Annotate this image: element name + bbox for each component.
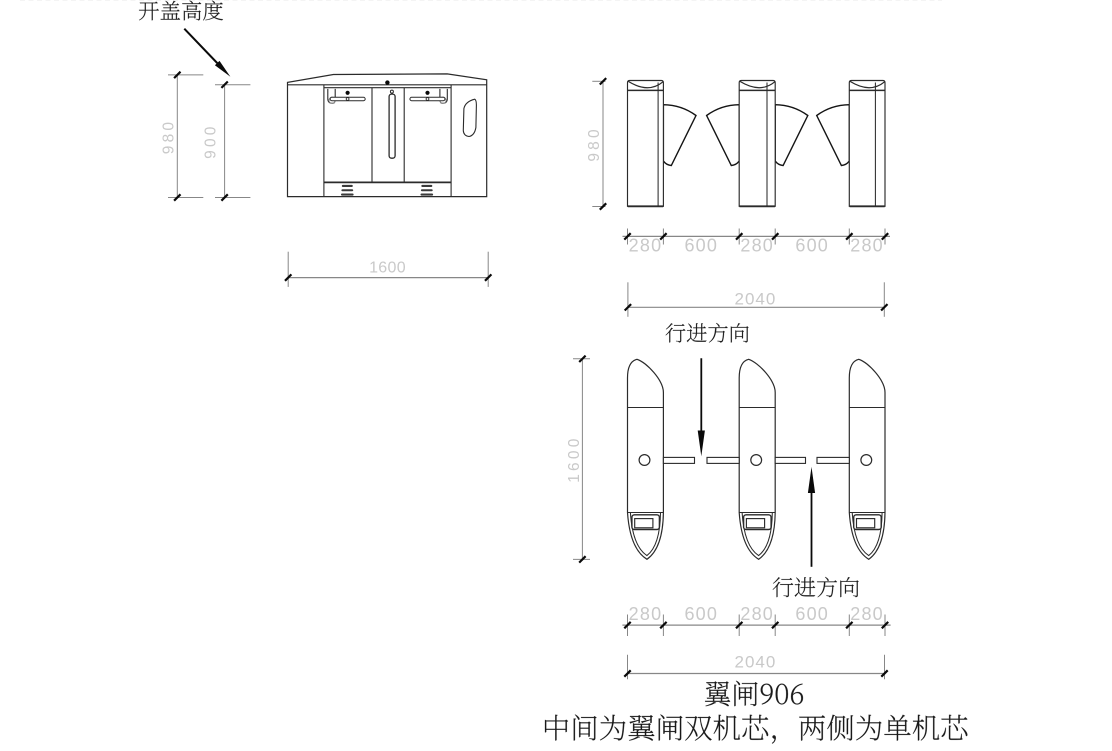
svg-text:280: 280 bbox=[629, 236, 663, 256]
svg-text:280: 280 bbox=[740, 236, 774, 256]
svg-text:1600: 1600 bbox=[566, 435, 583, 482]
svg-text:600: 600 bbox=[795, 604, 829, 624]
svg-text:2040: 2040 bbox=[734, 290, 776, 309]
svg-text:280: 280 bbox=[850, 604, 884, 624]
svg-text:2040: 2040 bbox=[734, 653, 776, 672]
svg-text:280: 280 bbox=[629, 604, 663, 624]
svg-text:600: 600 bbox=[684, 604, 718, 624]
svg-text:280: 280 bbox=[740, 604, 774, 624]
svg-text:900: 900 bbox=[202, 123, 219, 158]
svg-text:980: 980 bbox=[586, 126, 603, 161]
svg-text:980: 980 bbox=[160, 119, 177, 154]
svg-text:280: 280 bbox=[850, 236, 884, 256]
svg-text:1600: 1600 bbox=[369, 259, 406, 276]
svg-text:600: 600 bbox=[684, 236, 718, 256]
svg-text:600: 600 bbox=[795, 236, 829, 256]
